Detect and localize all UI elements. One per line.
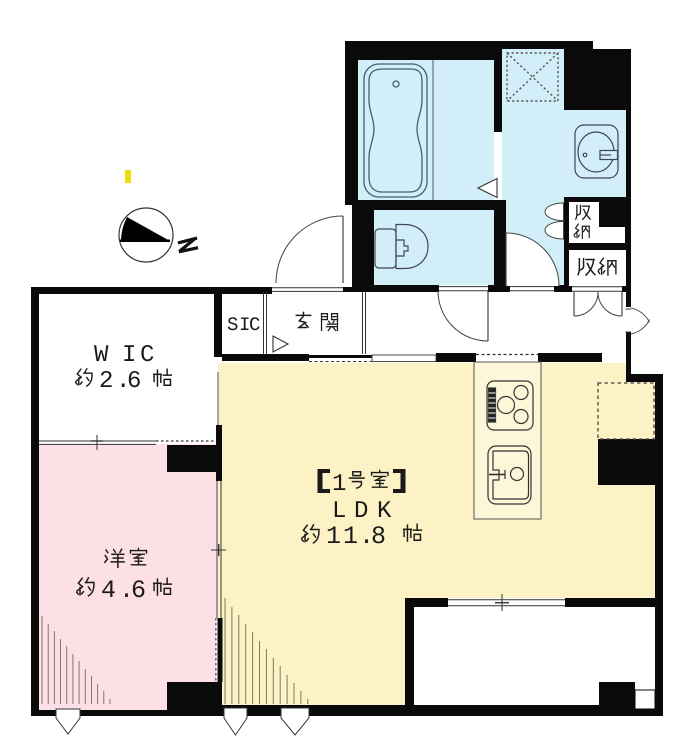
svg-text:K: K [377, 498, 392, 525]
svg-text:D: D [354, 498, 368, 525]
svg-text:6: 6 [131, 576, 146, 605]
svg-text:6: 6 [127, 368, 141, 395]
svg-text:1: 1 [326, 522, 341, 551]
svg-text:2: 2 [99, 368, 113, 395]
svg-text:S: S [227, 314, 238, 336]
svg-text:1: 1 [332, 471, 346, 498]
svg-text:I: I [122, 342, 136, 369]
svg-text:8: 8 [371, 522, 386, 551]
svg-text:L: L [332, 498, 346, 525]
svg-text:W: W [94, 342, 109, 369]
svg-text:1: 1 [343, 522, 358, 551]
svg-text:4: 4 [101, 576, 116, 605]
svg-text:C: C [140, 342, 154, 369]
svg-text:C: C [249, 314, 260, 336]
